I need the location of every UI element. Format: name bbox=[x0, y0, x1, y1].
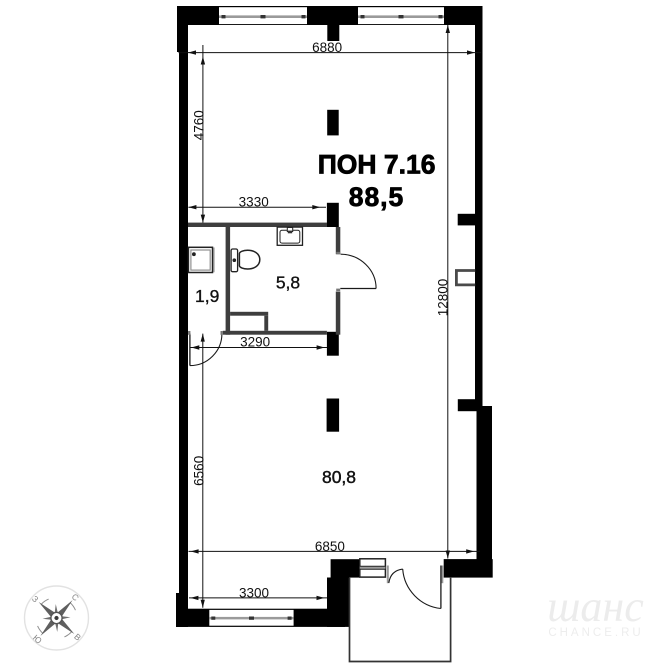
svg-text:6560: 6560 bbox=[191, 456, 206, 486]
svg-text:6850: 6850 bbox=[315, 539, 345, 554]
svg-text:3300: 3300 bbox=[239, 585, 269, 600]
svg-text:6880: 6880 bbox=[312, 40, 342, 55]
svg-text:12800: 12800 bbox=[435, 279, 450, 317]
svg-text:шанс: шанс bbox=[547, 582, 644, 631]
svg-text:5,8: 5,8 bbox=[276, 273, 300, 293]
svg-text:3330: 3330 bbox=[239, 194, 269, 209]
svg-text:ПОН 7.16: ПОН 7.16 bbox=[318, 150, 436, 180]
svg-text:4760: 4760 bbox=[191, 110, 206, 140]
svg-text:88,5: 88,5 bbox=[349, 182, 405, 212]
svg-text:CHANCE.RU: CHANCE.RU bbox=[548, 627, 643, 639]
svg-text:1,9: 1,9 bbox=[195, 286, 219, 306]
svg-text:3290: 3290 bbox=[240, 335, 270, 350]
svg-text:80,8: 80,8 bbox=[322, 467, 356, 487]
